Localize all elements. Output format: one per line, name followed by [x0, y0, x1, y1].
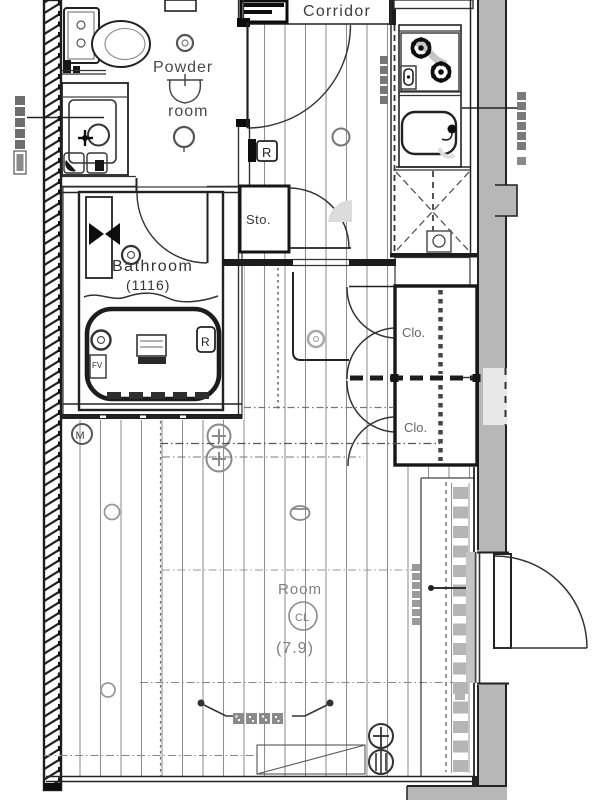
svg-text:(1116): (1116)	[126, 277, 170, 293]
svg-text:R: R	[262, 145, 271, 160]
svg-text:Bathroom: Bathroom	[112, 258, 193, 275]
svg-text:Sto.: Sto.	[246, 212, 271, 227]
svg-text:Room: Room	[278, 581, 322, 598]
svg-text:Clo.: Clo.	[402, 325, 425, 340]
svg-text:Corridor: Corridor	[303, 3, 371, 20]
svg-text:R: R	[201, 335, 210, 349]
svg-text:room: room	[168, 103, 208, 120]
svg-text:CL: CL	[295, 612, 309, 624]
svg-text:FV: FV	[92, 361, 103, 370]
svg-text:Clo.: Clo.	[404, 420, 427, 435]
svg-text:(7.9): (7.9)	[276, 640, 314, 657]
svg-text:Powder: Powder	[153, 59, 213, 76]
svg-text:M: M	[76, 430, 85, 442]
